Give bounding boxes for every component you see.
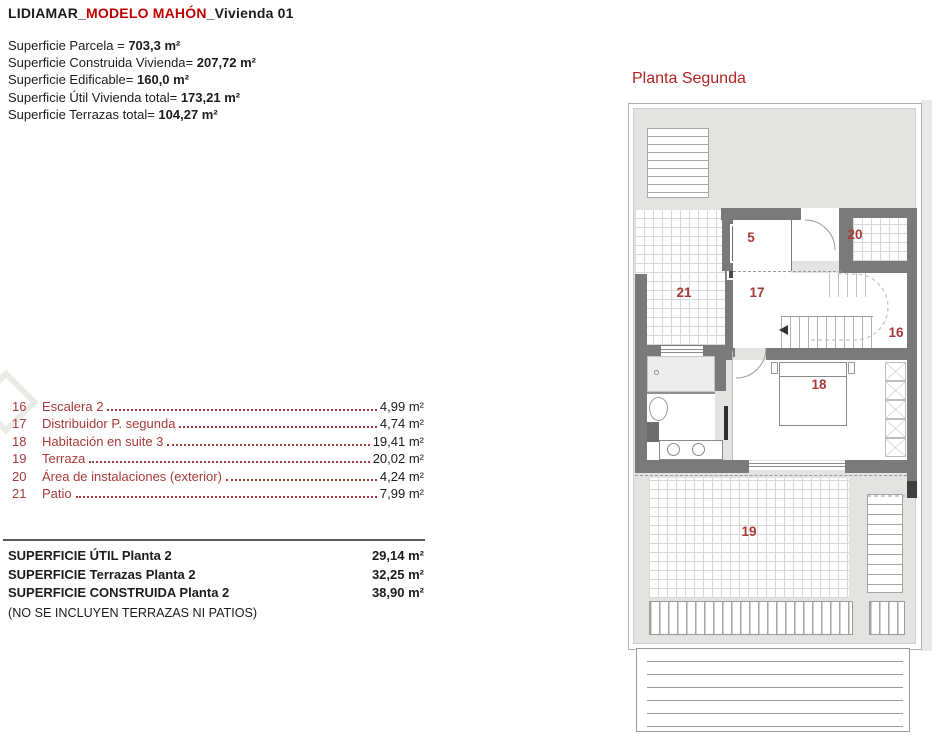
title-model: MODELO MAHÓN: [86, 5, 207, 21]
room-list-row: 18Habitación en suite 319,41 m²: [8, 433, 424, 450]
nightstand: [771, 362, 778, 374]
wardrobe-cell: [885, 381, 906, 400]
pergola-slats: [649, 601, 853, 635]
dot-leader: [167, 443, 369, 446]
room-list-row: 20Área de instalaciones (exterior)4,24 m…: [8, 468, 424, 485]
exterior-steps-below: [636, 648, 910, 732]
wall: [766, 348, 907, 360]
floor-plan: 5 16 17 18 19 20 21: [628, 103, 922, 650]
bathroom-divider: [647, 392, 715, 394]
wall: [647, 422, 659, 442]
room-label-17: 17: [741, 285, 773, 300]
room-label-5: 5: [737, 230, 765, 245]
room-list-row: 17Distribuidor P. segunda4,74 m²: [8, 415, 424, 432]
summary-row: SUPERFICIE ÚTIL Planta 229,14 m²: [8, 547, 424, 566]
dot-leader: [76, 495, 377, 498]
stair-treads-upper: [829, 273, 873, 297]
wall: [635, 460, 749, 473]
dot-leader: [226, 478, 377, 481]
vestibule: [792, 220, 839, 261]
room-list-row: 16Escalera 24,99 m²: [8, 398, 424, 415]
door-opening: [801, 208, 839, 220]
wall: [845, 460, 907, 473]
bed: [779, 362, 847, 426]
shower-drain: [654, 370, 659, 375]
dashed-boundary: [635, 475, 907, 476]
room-label-18: 18: [803, 377, 835, 392]
window: [661, 346, 703, 356]
wardrobe-cell: [885, 362, 906, 381]
room-label-20: 20: [835, 227, 875, 242]
patio-21-tiles: [635, 210, 725, 345]
wall: [907, 208, 917, 481]
wardrobe-cell: [885, 438, 906, 457]
room-label-16: 16: [879, 325, 913, 340]
plan-title: Planta Segunda: [632, 70, 746, 88]
sink: [692, 443, 705, 456]
dot-leader: [179, 425, 376, 428]
summary-line: Superficie Útil Vivienda total= 173,21 m…: [8, 89, 256, 106]
wardrobe-cell: [885, 400, 906, 419]
stair-treads-lower: [781, 316, 873, 348]
title-brand: LIDIAMAR_: [8, 5, 86, 21]
sink: [667, 443, 680, 456]
surface-summary-bottom: SUPERFICIE ÚTIL Planta 229,14 m² SUPERFI…: [8, 547, 424, 622]
pergola-slats: [869, 601, 905, 635]
summary-note: (NO SE INCLUYEN TERRAZAS NI PATIOS): [8, 604, 424, 623]
sliding-window: [749, 461, 845, 470]
summary-line: Superficie Edificable= 160,0 m²: [8, 71, 256, 88]
room-list-row: 19Terraza20,02 m²: [8, 450, 424, 467]
summary-row: SUPERFICIE CONSTRUIDA Planta 238,90 m²: [8, 584, 424, 603]
horizontal-rule: [3, 539, 425, 541]
wall: [907, 481, 917, 498]
room-list-row: 21Patio7,99 m²: [8, 485, 424, 502]
exterior-stair: [867, 494, 903, 593]
summary-line: Superficie Terrazas total= 104,27 m²: [8, 106, 256, 123]
title-unit: _Vivienda 01: [207, 5, 294, 21]
plan-outer-shadow: [921, 100, 932, 651]
room-label-19: 19: [733, 524, 765, 539]
wall: [635, 274, 647, 460]
wall: [839, 261, 909, 273]
step-lines: [647, 661, 903, 729]
roof-louver: [647, 128, 709, 198]
room-area-list: 16Escalera 24,99 m² 17Distribuidor P. se…: [8, 398, 424, 502]
room-label-21: 21: [669, 285, 699, 300]
dashed-boundary: [733, 271, 841, 272]
wardrobe-cell: [885, 419, 906, 438]
wall: [715, 351, 726, 391]
surface-summary-top: Superficie Parcela = 703,3 m² Superficie…: [8, 37, 256, 123]
door-leaf: [724, 406, 728, 440]
wardrobe: [885, 362, 906, 457]
dot-leader: [89, 460, 369, 463]
dot-leader: [107, 408, 377, 411]
summary-row: SUPERFICIE Terrazas Planta 232,25 m²: [8, 566, 424, 585]
summary-line: Superficie Construida Vivienda= 207,72 m…: [8, 54, 256, 71]
summary-line: Superficie Parcela = 703,3 m²: [8, 37, 256, 54]
nightstand: [848, 362, 855, 374]
page-title: LIDIAMAR_MODELO MAHÓN_Vivienda 01: [8, 5, 294, 21]
